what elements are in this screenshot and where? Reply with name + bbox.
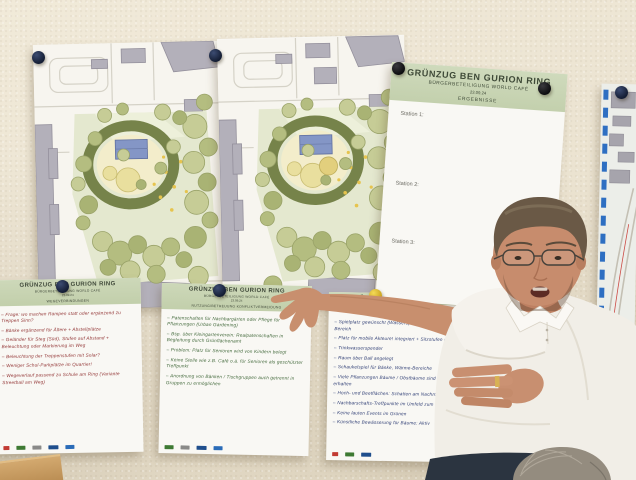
wedding-ring bbox=[495, 376, 500, 387]
polo-button bbox=[546, 339, 549, 342]
presenter-man bbox=[0, 0, 636, 480]
teeth bbox=[533, 288, 548, 291]
photo-scene: GRÜNZUG BEN GURION RING BÜRGERBETEILIGUN… bbox=[0, 0, 636, 480]
polo-button bbox=[546, 329, 549, 332]
eye bbox=[555, 256, 562, 260]
eye bbox=[515, 256, 522, 260]
